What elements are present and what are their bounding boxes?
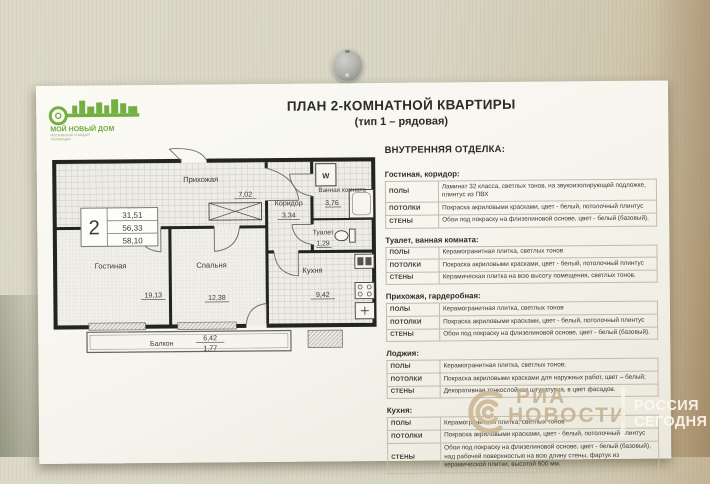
room-label-bathroom: Ванная комната xyxy=(318,187,366,194)
poster-title-block: ПЛАН 2-КОМНАТНОЙ КВАРТИРЫ (тип 1 – рядов… xyxy=(236,96,566,129)
room-label-living: Гостиная xyxy=(95,261,127,270)
balcony-area-bottom: 1,77 xyxy=(203,345,217,352)
rossiya-segodnya-watermark: РОССИЯ СЕГОДНЯ xyxy=(634,398,707,430)
room-label-kitchen: Кухня xyxy=(302,266,322,275)
section-title: Туалет, ванная комната: xyxy=(385,233,657,244)
walls-value: Обои под покраску на флизелиновой основе… xyxy=(440,327,658,342)
walls-value: Обои под покраску на флизелиновой основе… xyxy=(439,213,657,228)
finishes-section-living-corridor: Гостиная, коридор: ПОЛЫ Ламинат 32 класс… xyxy=(385,168,658,229)
section-title: Кухня: xyxy=(387,404,659,415)
balcony-label: Балкон xyxy=(150,341,174,348)
watermark-rs-line1: РОССИЯ xyxy=(634,398,707,414)
washer-label: W xyxy=(322,171,330,180)
room-area-bathroom: 3,76 xyxy=(325,200,339,207)
room-area-toilet: 1,29 xyxy=(316,240,330,247)
balcony: Балкон 6,42 1,77 xyxy=(87,331,291,354)
hatched-slab xyxy=(308,330,342,347)
logo-subtitle-line2: РЕНОВАЦИИ xyxy=(50,137,71,141)
finishes-title: ВНУТРЕННЯЯ ОТДЕЛКА: xyxy=(385,143,657,156)
row-label-ceilings: ПОТОЛКИ xyxy=(386,202,439,215)
balcony-area-top: 6,42 xyxy=(203,335,217,342)
apartment-info-box: 2 31,51 56,33 58,10 xyxy=(81,208,158,247)
toilet-icon xyxy=(335,231,348,241)
row-label-ceilings: ПОТОЛКИ xyxy=(387,373,440,386)
logo-title: МОЙ НОВЫЙ ДОМ xyxy=(50,124,114,134)
finishes-section-toilet-bathroom: Туалет, ванная комната: ПОЛЫ Керамограни… xyxy=(385,233,657,285)
row-label-walls: СТЕНЫ xyxy=(387,329,440,342)
finishes-section-kitchen: Кухня: ПОЛЫ Керамогранитная плитка, свет… xyxy=(387,404,660,474)
row-label-walls: СТЕНЫ xyxy=(386,215,439,228)
row-label-walls: СТЕНЫ xyxy=(388,443,441,473)
row-label-walls: СТЕНЫ xyxy=(386,272,439,285)
walls-value: Декоративная тонкослойная штукатурка, в … xyxy=(440,384,658,399)
row-label-walls: СТЕНЫ xyxy=(387,386,440,399)
row-label-floors: ПОЛЫ xyxy=(385,181,438,203)
info-area-living: 31,51 xyxy=(122,211,143,220)
section-title: Гостиная, коридор: xyxy=(385,168,657,179)
room-area-living: 19,13 xyxy=(144,292,162,299)
row-label-floors: ПОЛЫ xyxy=(387,417,440,430)
bathtub-icon xyxy=(349,190,373,218)
watermark-divider xyxy=(621,387,625,437)
poster-subtitle: (тип 1 – рядовая) xyxy=(236,114,566,129)
section-title: Прихожая, гардеробная: xyxy=(386,290,658,301)
info-room-count: 2 xyxy=(88,217,99,239)
magnet-notch xyxy=(345,50,350,53)
photo-of-floorplan-poster: { "photo": { "watermark_left": { "line1"… xyxy=(0,0,710,457)
metal-disc-magnet xyxy=(332,49,363,82)
row-label-ceilings: ПОТОЛКИ xyxy=(387,316,440,329)
room-area-bedroom: 12,38 xyxy=(208,295,226,302)
room-label-toilet: Туалет xyxy=(313,229,334,236)
info-area-total: 56,33 xyxy=(122,224,143,233)
section-title: Лоджия: xyxy=(386,347,658,358)
walls-value: Керамическая плитка на всю высоту помеще… xyxy=(439,270,657,285)
room-area-hallway: 7,02 xyxy=(238,192,252,199)
room-label-bedroom: Спальня xyxy=(196,261,226,270)
room-area-kitchen: 9,42 xyxy=(316,292,330,299)
finishes-section-loggia: Лоджия: ПОЛЫ Керамогранитная плитка, све… xyxy=(386,347,658,399)
room-area-corridor: 3,34 xyxy=(282,212,296,219)
city-skyline-icon xyxy=(65,99,139,117)
floorplan-poster: МОЙ НОВЫЙ ДОМ МОСКОВСКИЙ СТАНДАРТ РЕНОВА… xyxy=(36,80,671,464)
watermark-rs-line2: СЕГОДНЯ xyxy=(634,414,707,430)
room-label-corridor: Коридор xyxy=(275,200,303,207)
room-label-hallway: Прихожая xyxy=(183,175,218,184)
finishes-section-hallway-wardrobe: Прихожая, гардеробная: ПОЛЫ Керамогранит… xyxy=(386,290,658,342)
row-label-floors: ПОЛЫ xyxy=(386,247,439,260)
floor-plan: Балкон 6,42 1,77 xyxy=(47,141,383,360)
stove-icon xyxy=(355,282,374,298)
developer-logo: МОЙ НОВЫЙ ДОМ МОСКОВСКИЙ СТАНДАРТ РЕНОВА… xyxy=(48,93,152,147)
finishes-panel: ВНУТРЕННЯЯ ОТДЕЛКА: Гостиная, коридор: П… xyxy=(385,143,660,481)
magnet-screw xyxy=(345,73,350,78)
row-label-ceilings: ПОТОЛКИ xyxy=(386,259,439,272)
poster-title: ПЛАН 2-КОМНАТНОЙ КВАРТИРЫ xyxy=(236,96,566,114)
row-label-ceilings: ПОТОЛКИ xyxy=(388,430,441,443)
key-city-logo-icon: МОЙ НОВЫЙ ДОМ МОСКОВСКИЙ СТАНДАРТ РЕНОВА… xyxy=(48,93,152,142)
info-area-full: 58,10 xyxy=(122,236,143,245)
row-label-floors: ПОЛЫ xyxy=(386,303,439,316)
row-label-floors: ПОЛЫ xyxy=(387,360,440,373)
floors-value: Ламинат 32 класса, светлых тонов, на зву… xyxy=(438,179,656,202)
